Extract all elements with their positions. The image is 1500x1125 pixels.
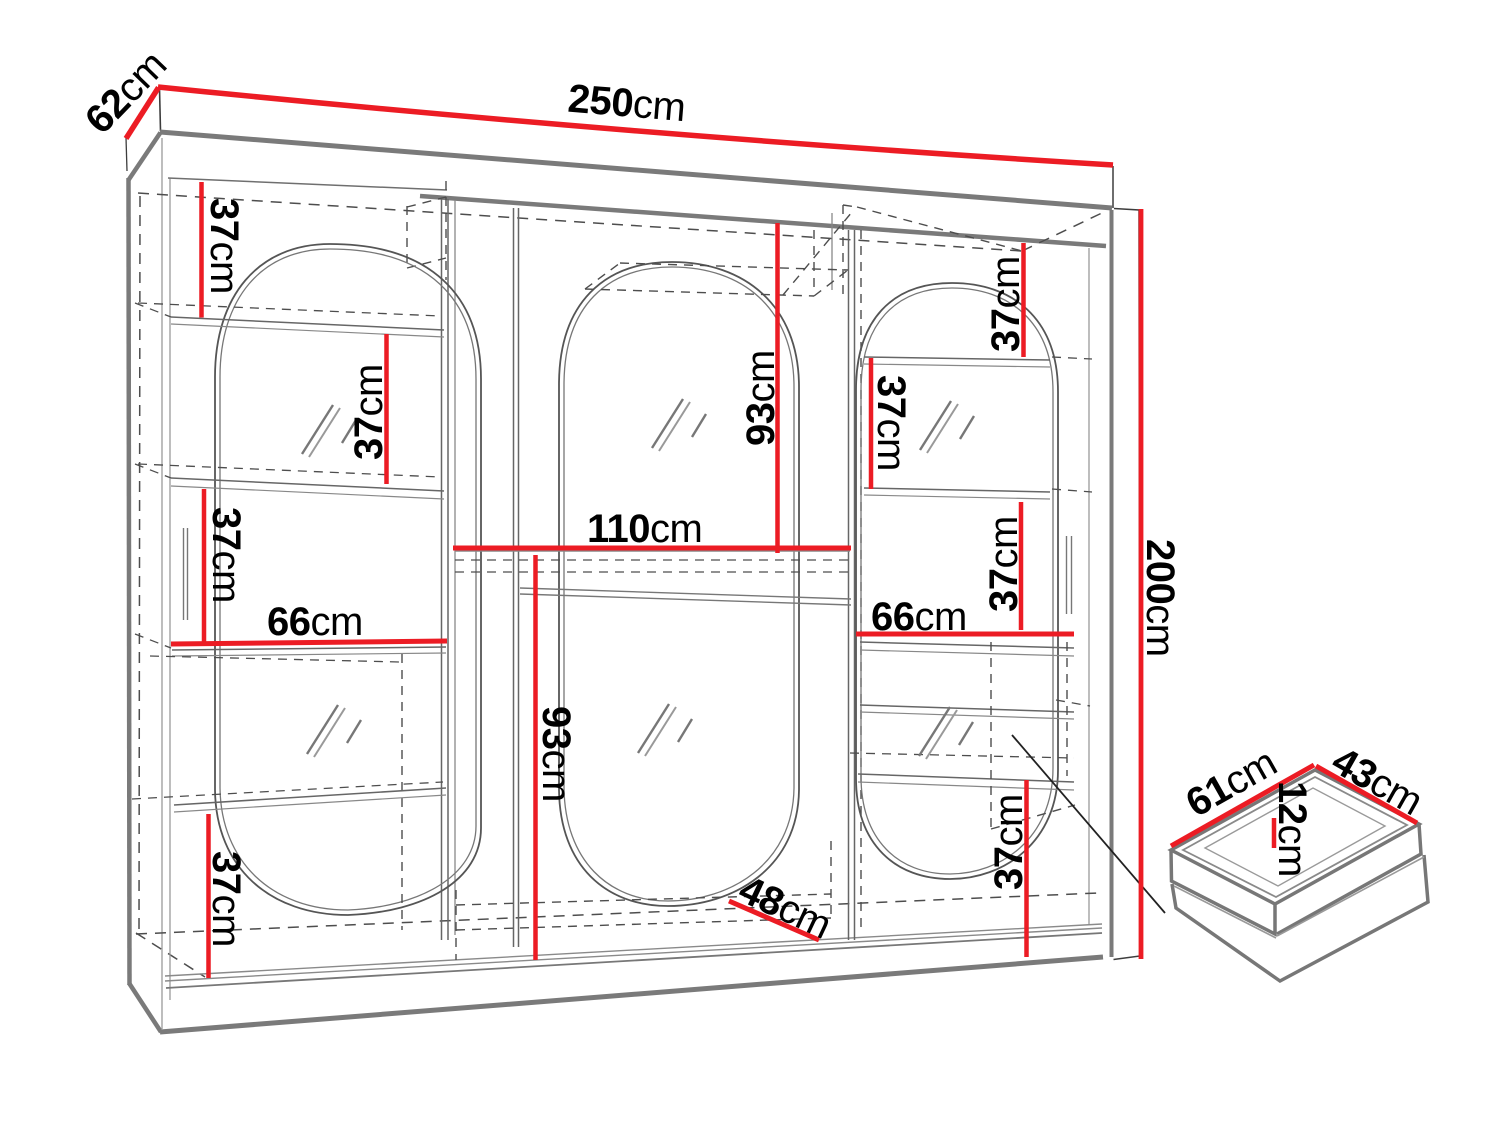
svg-text:66cm: 66cm: [871, 595, 967, 639]
svg-text:37cm: 37cm: [202, 198, 246, 294]
svg-text:93cm: 93cm: [739, 350, 783, 446]
svg-text:66cm: 66cm: [267, 600, 363, 644]
svg-text:48cm: 48cm: [732, 867, 837, 947]
svg-text:37cm: 37cm: [347, 364, 391, 460]
svg-text:37cm: 37cm: [987, 794, 1031, 890]
svg-text:110cm: 110cm: [587, 507, 702, 551]
svg-text:37cm: 37cm: [984, 256, 1028, 352]
svg-text:37cm: 37cm: [204, 851, 248, 947]
svg-text:93cm: 93cm: [534, 706, 578, 802]
svg-text:12cm: 12cm: [1270, 781, 1314, 877]
svg-text:37cm: 37cm: [204, 507, 248, 603]
svg-text:37cm: 37cm: [982, 516, 1026, 612]
svg-text:250cm: 250cm: [566, 77, 687, 130]
svg-text:43cm: 43cm: [1325, 739, 1430, 824]
svg-text:200cm: 200cm: [1138, 539, 1182, 657]
svg-text:37cm: 37cm: [869, 375, 913, 471]
